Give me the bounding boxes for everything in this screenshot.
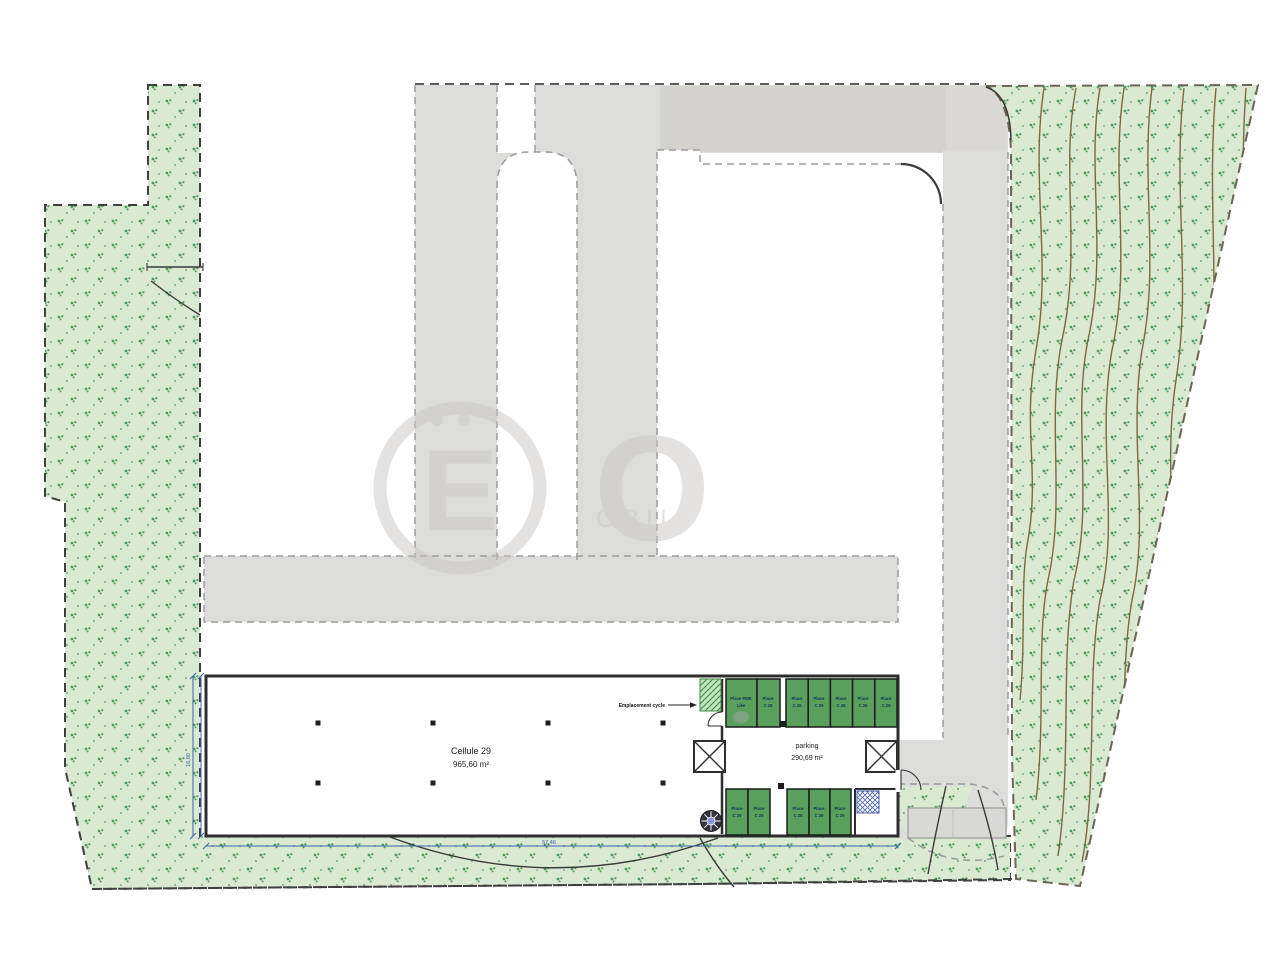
building-cellule-29: Emplacement cycle Cellule 29 965,60 m² p…	[206, 676, 921, 836]
walkway-ramp	[908, 808, 1006, 838]
space-label: Place	[763, 696, 775, 701]
watermark-dot	[431, 414, 443, 426]
space-label: C 29	[764, 703, 774, 708]
right-vegetation-area	[986, 85, 1258, 886]
building-area-label: 965,60 m²	[453, 760, 489, 769]
pillar	[780, 721, 786, 727]
dim-width-label: 57,46	[542, 840, 556, 846]
top-white-gap	[497, 84, 535, 153]
site-plan-page: E O OBIL Emplacement cycle Cellule 29 96…	[0, 0, 1280, 960]
dim-height-label: 16,80	[186, 753, 192, 767]
space-label: Place	[881, 696, 893, 701]
space-label: C 29	[815, 703, 825, 708]
fan-symbol	[701, 811, 722, 832]
space-label: Place	[814, 806, 826, 811]
parking-row-top: Place PMR Liée Place C 29 Place C 29 Pla…	[726, 679, 897, 727]
space-label: Place	[793, 806, 805, 811]
watermark-letter: O	[594, 404, 711, 572]
space-label: C 29	[794, 813, 804, 818]
pmr-marking	[733, 711, 749, 723]
right-road	[943, 150, 1008, 758]
space-label: Place	[836, 696, 848, 701]
shaft-right	[866, 741, 897, 772]
parking-space	[787, 789, 809, 835]
watermark-caption: OBIL	[596, 505, 681, 533]
cycle-parking-area	[700, 679, 721, 711]
space-label: Place	[835, 806, 847, 811]
space-label: C 29	[815, 813, 825, 818]
space-label: C 29	[755, 813, 765, 818]
top-road-dark-section	[660, 86, 946, 152]
parking-space	[809, 789, 830, 835]
space-label: C 29	[882, 703, 892, 708]
space-label: C 29	[733, 813, 743, 818]
site-plan-drawing: E O OBIL Emplacement cycle Cellule 29 96…	[0, 0, 1280, 960]
space-label: Place	[814, 696, 826, 701]
space-label: Place	[858, 696, 870, 701]
space-label: C 29	[836, 813, 846, 818]
right-green-fill	[986, 85, 1258, 886]
parking-space	[830, 789, 851, 835]
space-label: Place PMR	[730, 696, 751, 701]
space-label: C 29	[837, 703, 847, 708]
watermark-initial: E	[422, 427, 499, 555]
watermark-dot	[458, 414, 470, 426]
parking-area-label: 290,69 m²	[791, 755, 823, 762]
technical-hatch	[857, 791, 879, 813]
parking-space	[726, 789, 748, 835]
space-label: Place	[754, 806, 766, 811]
cycle-label: Emplacement cycle	[619, 703, 666, 709]
door-opening	[896, 770, 901, 792]
parking-space	[748, 789, 770, 835]
space-label: Liée	[737, 703, 746, 708]
space-label: C 29	[859, 703, 869, 708]
shaft-left	[694, 741, 725, 772]
access-road-band	[204, 556, 898, 622]
building-name-label: Cellule 29	[451, 746, 491, 756]
pillar	[778, 783, 784, 789]
space-label: C 29	[793, 703, 803, 708]
space-label: Place	[792, 696, 804, 701]
parking-row-bottom: Place C 29 Place C 29 Place C 29 Place C…	[726, 783, 851, 835]
parking-label: parking	[796, 743, 819, 750]
space-label: Place	[732, 806, 744, 811]
